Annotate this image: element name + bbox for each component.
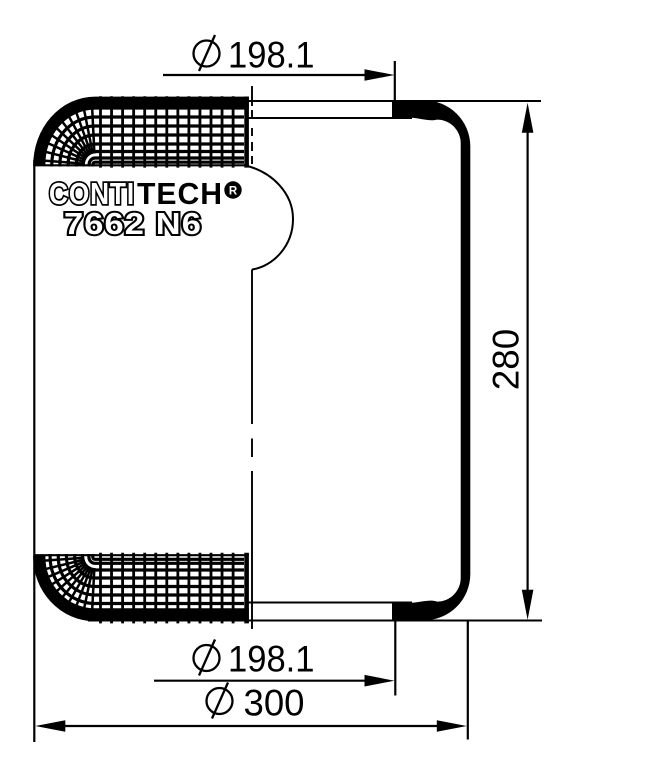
svg-text:198.1: 198.1 xyxy=(228,34,315,75)
svg-text:198.1: 198.1 xyxy=(228,638,315,679)
svg-text:300: 300 xyxy=(244,682,305,723)
svg-text:7662 N6: 7662 N6 xyxy=(64,206,202,241)
svg-text:R: R xyxy=(229,186,238,198)
svg-text:280: 280 xyxy=(486,329,527,391)
